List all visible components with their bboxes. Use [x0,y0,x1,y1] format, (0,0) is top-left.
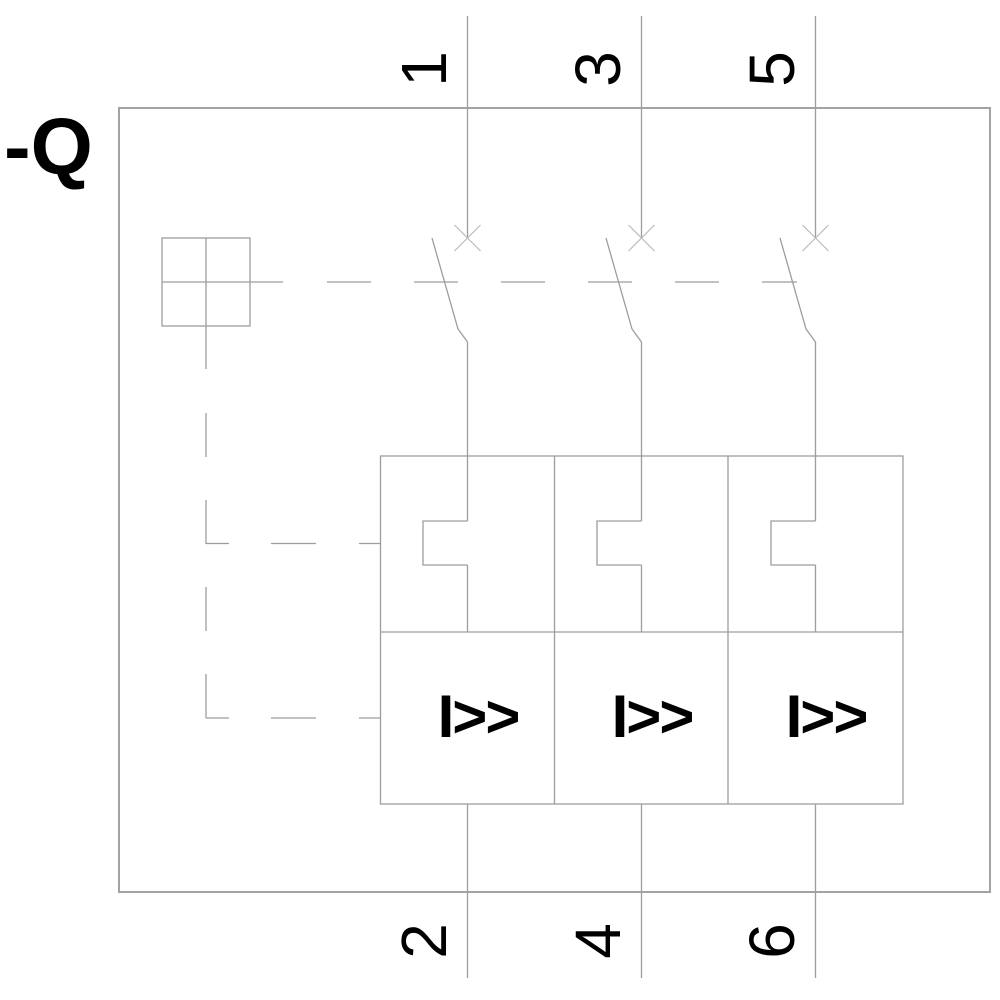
pole-3 [771,16,829,978]
pole-2 [597,16,655,978]
schematic-page: -Q 1 3 5 2 4 6 I>> I>> I>> [0,0,1000,1000]
pole-3-contact-blade [780,238,816,342]
terminal-label-top-pole-3: 5 [740,51,804,87]
thermal-overload-notch-icon [423,521,468,565]
terminal-label-bottom-pole-2: 4 [566,923,630,959]
terminal-label-top-pole-1: 1 [392,51,456,87]
thermal-overload-notch-icon [771,521,816,565]
magnetic-release-label-pole-1: I>> [438,687,519,747]
pole-1-contact-blade [432,238,468,342]
thermal-overload-notch-icon [597,521,642,565]
terminal-label-top-pole-2: 3 [566,51,630,87]
terminal-label-bottom-pole-1: 2 [392,923,456,959]
mechanism-square-icon [162,238,283,369]
pole-1 [423,16,481,978]
magnetic-release-label-pole-3: I>> [786,687,867,747]
device-designation-label: -Q [4,101,93,193]
dashed-linkage-line [206,282,797,718]
terminal-label-bottom-pole-3: 6 [740,923,804,959]
magnetic-release-label-pole-2: I>> [612,687,693,747]
schematic-canvas [0,0,1000,1000]
pole-2-contact-blade [606,238,642,342]
